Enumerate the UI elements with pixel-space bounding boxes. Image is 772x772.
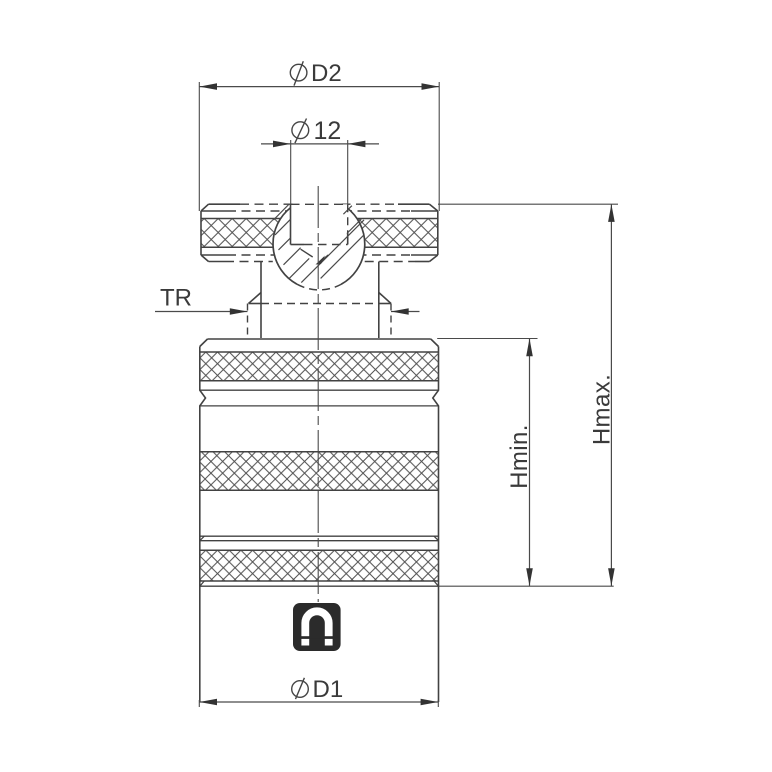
svg-text:D1: D1 (313, 676, 344, 703)
svg-text:D2: D2 (311, 60, 342, 87)
svg-text:TR: TR (160, 285, 192, 312)
svg-text:Hmin.: Hmin. (506, 424, 533, 489)
svg-text:12: 12 (314, 117, 342, 145)
svg-text:Hmax.: Hmax. (589, 374, 616, 445)
